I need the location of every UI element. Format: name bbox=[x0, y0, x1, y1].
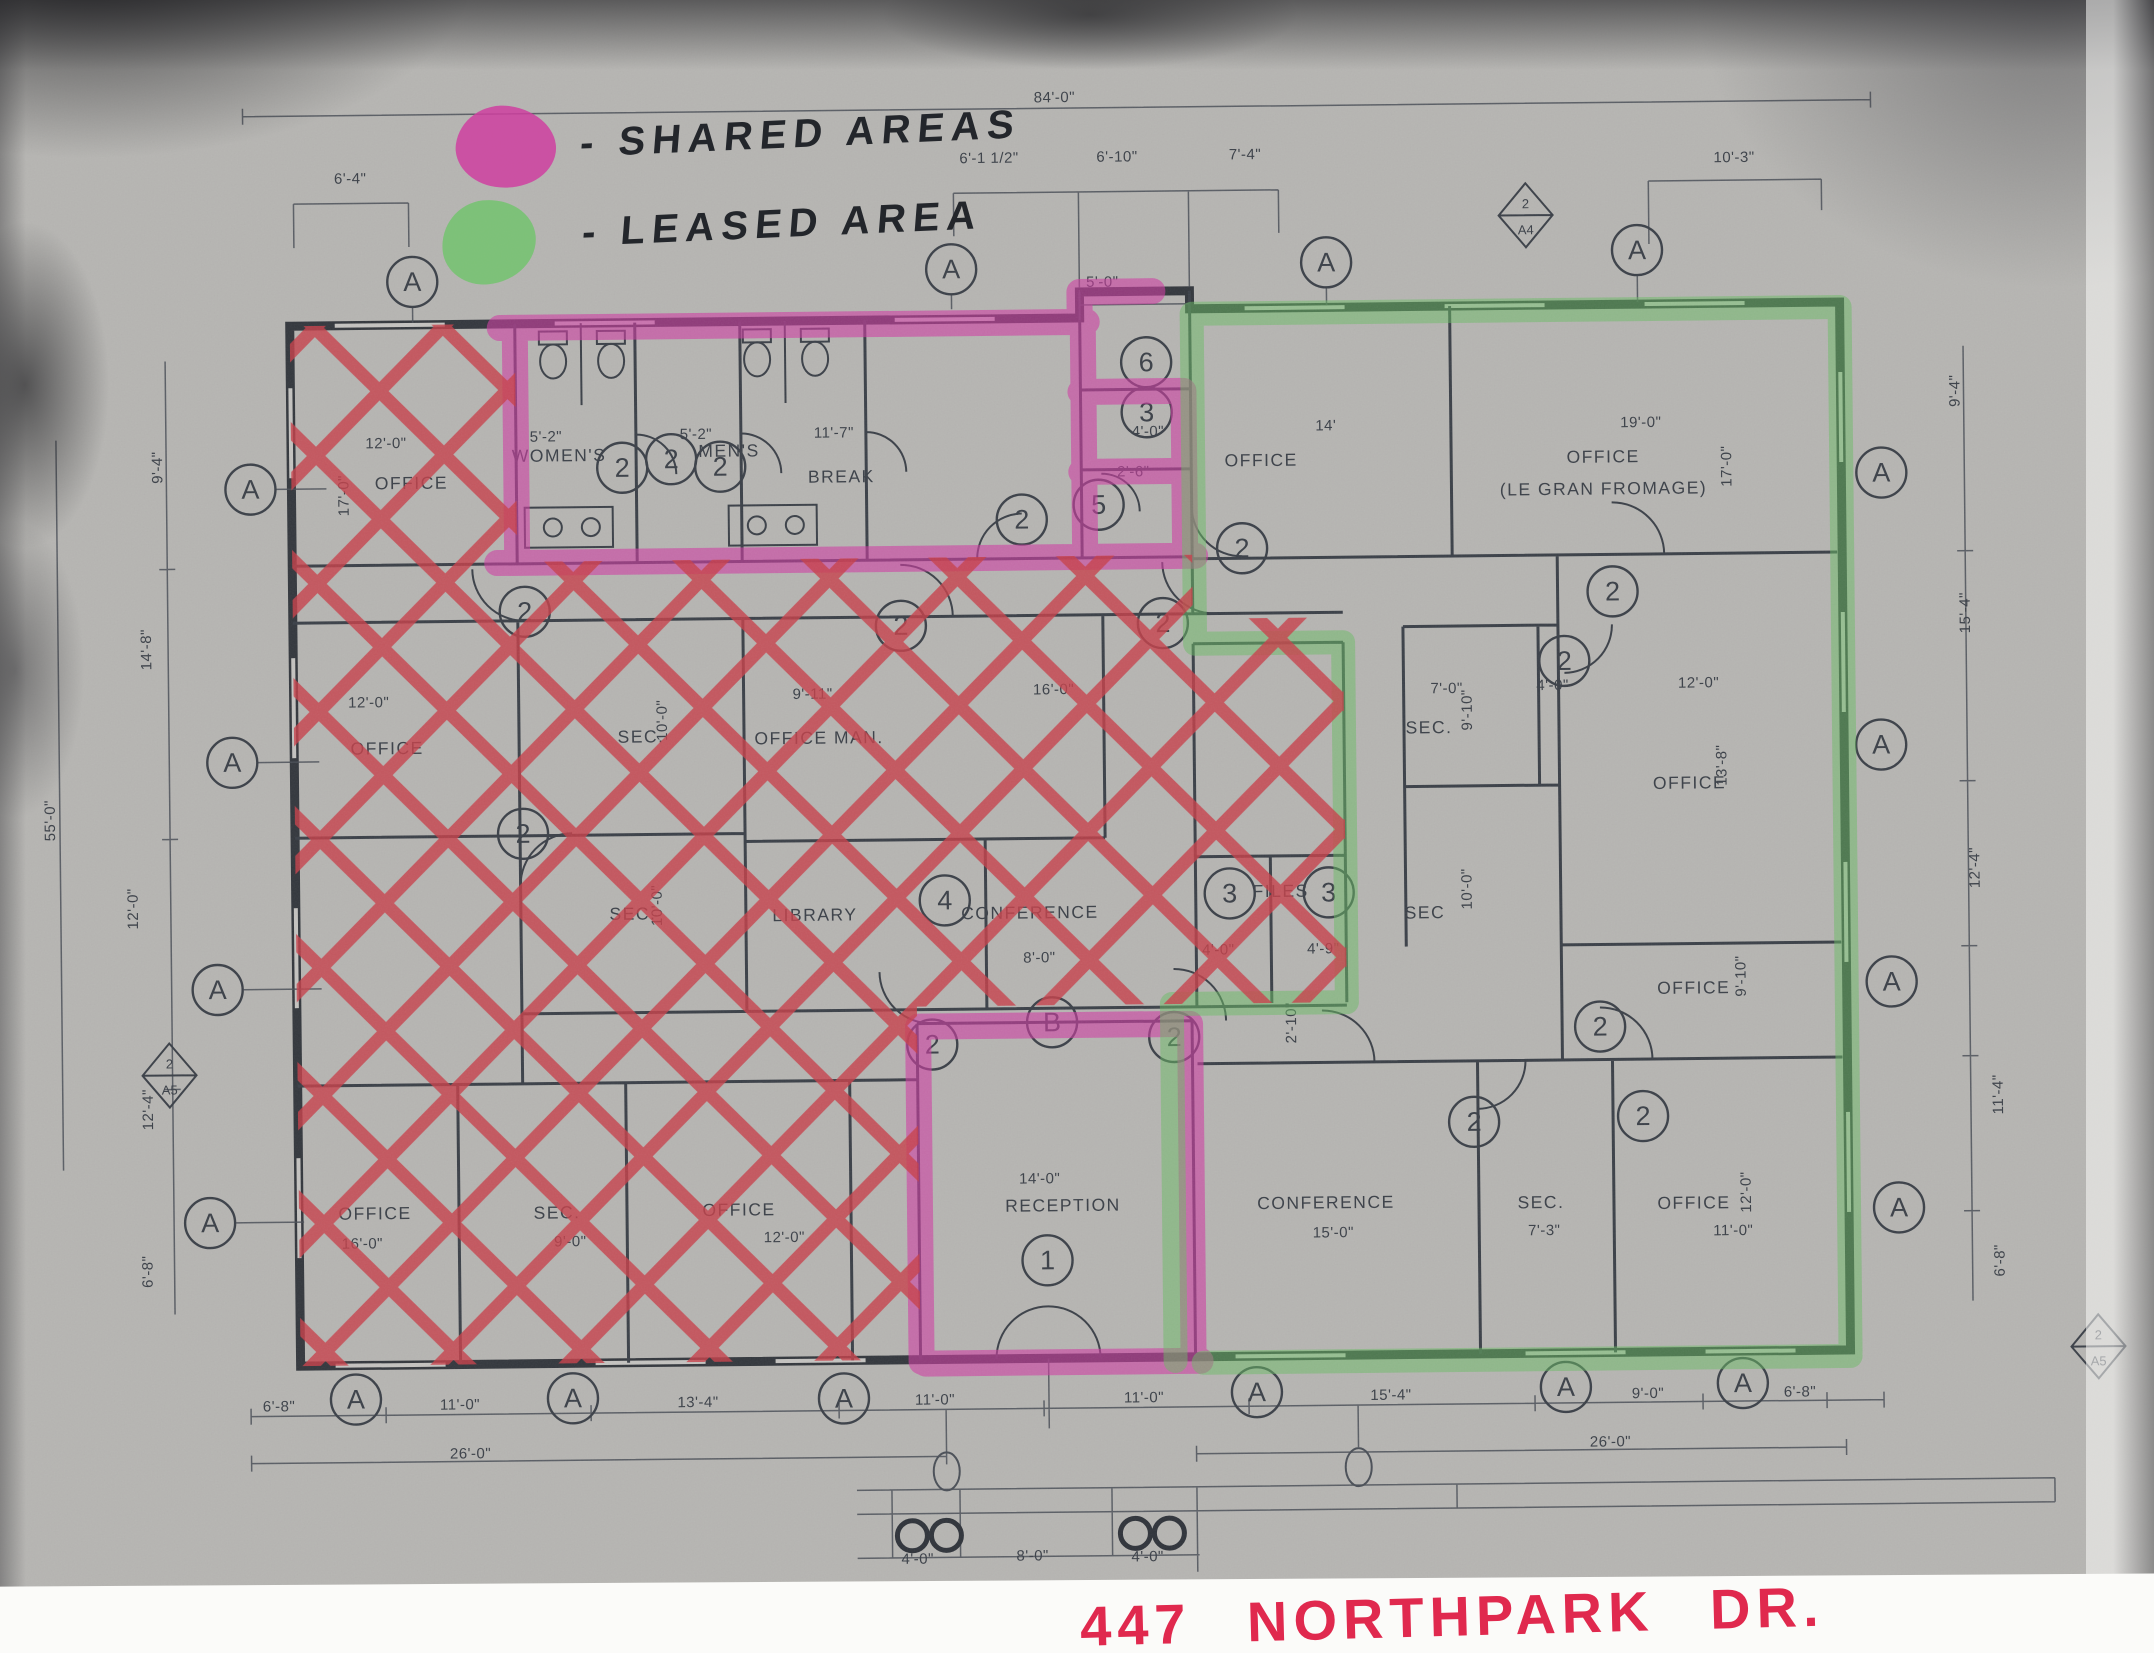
address-text: 447 NORTHPARK DR. bbox=[1079, 1574, 1825, 1653]
floor-plan-drawing: OFFICEWOMEN'SMEN'SBREAKOFFICEOFFICE(LE G… bbox=[0, 0, 2154, 1653]
scan-noise bbox=[0, 0, 2154, 1653]
scanned-floor-plan-sheet: OFFICEWOMEN'SMEN'SBREAKOFFICEOFFICE(LE G… bbox=[0, 0, 2154, 1653]
address-strip: 447 NORTHPARK DR. bbox=[0, 1573, 2154, 1653]
